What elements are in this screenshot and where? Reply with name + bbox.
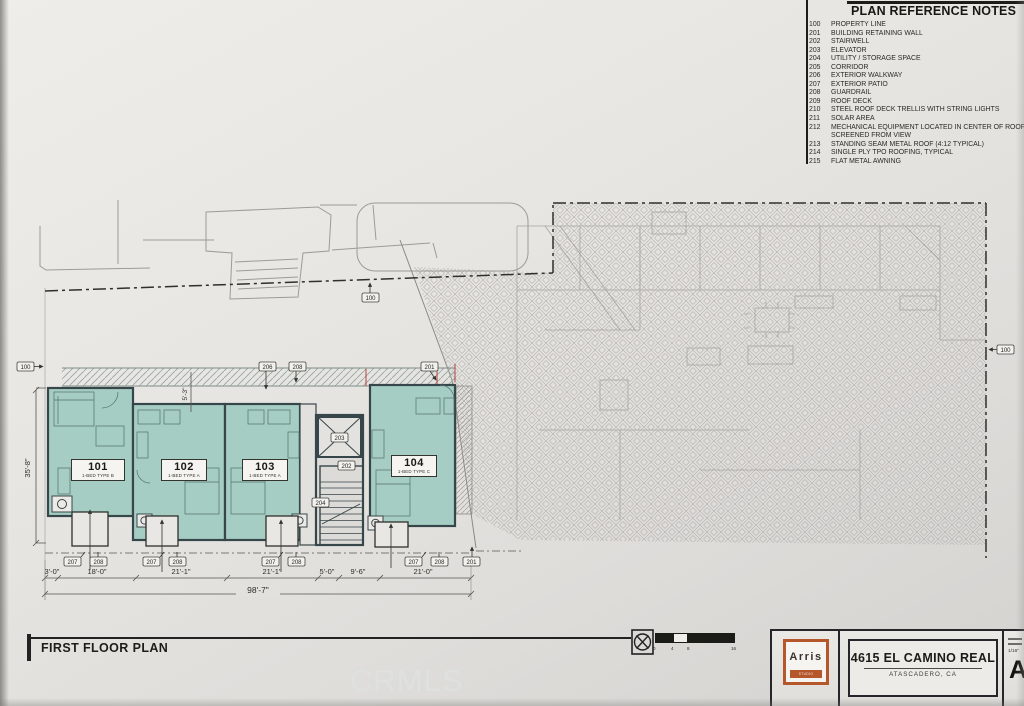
scale-tick: 8 [687, 646, 690, 651]
svg-text:201: 201 [466, 560, 477, 566]
svg-text:100: 100 [20, 365, 31, 371]
plan-reference-notes: PLAN REFERENCE NOTES 100PROPERTY LINE 20… [795, 0, 1024, 172]
svg-text:207: 207 [408, 560, 419, 566]
title-block-divider [838, 631, 840, 706]
project-title-box: 4615 EL CAMINO REAL ATASCADERO, CA [848, 639, 998, 697]
scale-tick: 0 [653, 646, 656, 651]
photo-edge-shadow [0, 0, 9, 706]
callout-patio: 207 [143, 557, 160, 566]
svg-text:208: 208 [291, 560, 302, 566]
unit-label-102: 102 1-BED TYPE A [161, 459, 207, 481]
architect-logo: Arris STUDIO ARCHITECTS [783, 639, 829, 685]
note-row: SCREENED FROM VIEW [809, 132, 1024, 141]
svg-text:100: 100 [1000, 348, 1011, 354]
note-row: 100PROPERTY LINE [809, 21, 1024, 30]
callout-retaining-wall: 201 [463, 557, 480, 566]
scale-tick: 4 [671, 646, 674, 651]
unit-type: 1-BED TYPE A [244, 473, 286, 478]
note-row: 205CORRIDOR [809, 64, 1024, 73]
unit-number: 101 [73, 461, 123, 473]
note-row: 213STANDING SEAM METAL ROOF (4:12 TYPICA… [809, 141, 1024, 150]
svg-text:206: 206 [262, 365, 273, 371]
svg-text:100: 100 [365, 296, 376, 302]
project-subtitle: ATASCADERO, CA [850, 671, 996, 678]
note-row: 204UTILITY / STORAGE SPACE [809, 55, 1024, 64]
awning-strip [456, 386, 472, 514]
photo-edge-shadow [0, 698, 1024, 706]
view-title-rule [31, 637, 631, 639]
title-block-divider [1002, 631, 1004, 706]
note-row: 206EXTERIOR WALKWAY [809, 72, 1024, 81]
scale-segment [688, 633, 735, 643]
unit-number: 104 [393, 457, 435, 469]
svg-text:5'-3": 5'-3" [182, 387, 189, 401]
callout-guardrail: 208 [431, 557, 448, 566]
notes-title: PLAN REFERENCE NOTES [851, 4, 1016, 18]
svg-text:208: 208 [434, 560, 445, 566]
note-row: 202STAIRWELL [809, 38, 1024, 47]
scale-segment [655, 633, 673, 643]
svg-text:3'-0": 3'-0" [45, 567, 60, 576]
exterior-walkway [62, 368, 455, 386]
svg-text:21'-0": 21'-0" [413, 567, 432, 576]
svg-text:21'-1": 21'-1" [262, 567, 281, 576]
callout-guardrail: 208 [289, 362, 306, 371]
project-title: 4615 EL CAMINO REAL [850, 651, 996, 665]
svg-text:5'-0": 5'-0" [320, 567, 335, 576]
svg-text:207: 207 [265, 560, 276, 566]
callout-guardrail: 208 [288, 557, 305, 566]
drawing-sheet: 3'-0" 18'-0" 21'-1" 21'-1" 5'-0" 9'-6" 2… [0, 0, 1024, 706]
svg-text:98'-7": 98'-7" [247, 585, 269, 595]
callout-elevator: 203 [331, 433, 348, 442]
svg-text:204: 204 [315, 501, 326, 507]
photo-edge-shadow [1016, 0, 1024, 706]
note-row: 209ROOF DECK [809, 98, 1024, 107]
svg-text:207: 207 [67, 560, 78, 566]
title-divider [864, 668, 982, 669]
unit-label-103: 103 1-BED TYPE A [242, 459, 288, 481]
callout-walkway: 206 [259, 362, 276, 371]
notes-left-rule [806, 0, 808, 164]
graphic-scale-bar [655, 633, 735, 643]
unit-type: 1-BED TYPE B [73, 473, 123, 478]
svg-text:208: 208 [292, 365, 303, 371]
callout-property-line: 100 [17, 362, 34, 371]
notes-list: 100PROPERTY LINE 201BUILDING RETAINING W… [809, 21, 1024, 166]
svg-text:21'-1": 21'-1" [171, 567, 190, 576]
note-row: 211SOLAR AREA [809, 115, 1024, 124]
unit-label-104: 104 1-BED TYPE C [391, 455, 437, 477]
unit-type: 1-BED TYPE C [393, 469, 435, 474]
svg-text:207: 207 [146, 560, 157, 566]
svg-text:9'-6": 9'-6" [351, 567, 366, 576]
callout-utility: 204 [312, 498, 329, 507]
callout-guardrail: 208 [90, 557, 107, 566]
svg-text:35'-8": 35'-8" [23, 458, 32, 477]
logo-text: Arris [786, 651, 826, 664]
unit-number: 102 [163, 461, 205, 473]
note-row: 210STEEL ROOF DECK TRELLIS WITH STRING L… [809, 106, 1024, 115]
note-row: 203ELEVATOR [809, 47, 1024, 56]
note-row: 208GUARDRAIL [809, 89, 1024, 98]
callout-patio: 207 [64, 557, 81, 566]
view-title: FIRST FLOOR PLAN [41, 641, 168, 655]
svg-text:201: 201 [424, 365, 435, 371]
callout-stairwell: 202 [338, 461, 355, 470]
logo-subtext: STUDIO ARCHITECTS [790, 670, 822, 678]
callout-property-line: 100 [997, 345, 1014, 354]
svg-text:208: 208 [93, 560, 104, 566]
unit-number: 103 [244, 461, 286, 473]
unit-type: 1-BED TYPE A [163, 473, 205, 478]
callout-retaining-wall: 201 [421, 362, 438, 371]
key-plan-symbol-icon [631, 629, 654, 655]
svg-text:208: 208 [172, 560, 183, 566]
scale-segment [673, 633, 688, 643]
note-row: 214SINGLE PLY TPO ROOFING, TYPICAL [809, 149, 1024, 158]
note-row: 201BUILDING RETAINING WALL [809, 30, 1024, 39]
unit-label-101: 101 1-BED TYPE B [71, 459, 125, 481]
note-row: 212MECHANICAL EQUIPMENT LOCATED IN CENTE… [809, 124, 1024, 133]
scale-tick: 16 [731, 646, 736, 651]
svg-text:202: 202 [341, 464, 352, 470]
svg-text:203: 203 [334, 436, 345, 442]
note-row: 215FLAT METAL AWNING [809, 158, 1024, 167]
title-block: Arris STUDIO ARCHITECTS 4615 EL CAMINO R… [770, 629, 1024, 706]
callout-guardrail: 208 [169, 557, 186, 566]
callout-patio: 207 [405, 557, 422, 566]
crmls-watermark: CRMLS [350, 663, 464, 699]
callout-property-line: 100 [362, 293, 379, 302]
note-row: 207EXTERIOR PATIO [809, 81, 1024, 90]
callout-patio: 207 [262, 557, 279, 566]
